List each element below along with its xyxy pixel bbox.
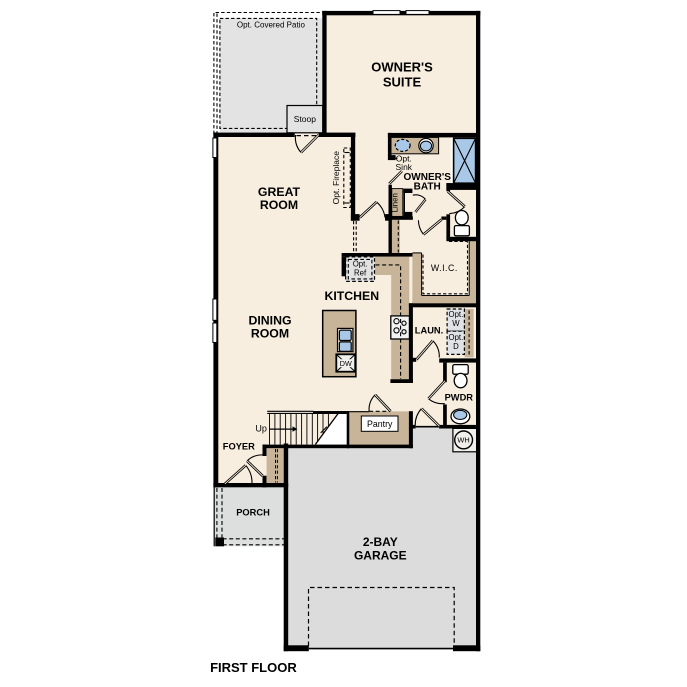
svg-text:Opt.: Opt. — [449, 333, 464, 342]
svg-text:FIRST FLOOR: FIRST FLOOR — [210, 660, 297, 675]
svg-text:GREAT: GREAT — [258, 185, 301, 199]
svg-text:FOYER: FOYER — [223, 442, 255, 452]
svg-text:D: D — [453, 342, 459, 351]
svg-text:Opt.: Opt. — [353, 260, 368, 269]
svg-text:Up: Up — [255, 423, 267, 433]
svg-text:PORCH: PORCH — [236, 508, 270, 518]
svg-text:Opt. Covered Patio: Opt. Covered Patio — [237, 20, 306, 29]
svg-text:OWNER'S: OWNER'S — [371, 60, 433, 75]
svg-text:2-BAY: 2-BAY — [363, 535, 398, 549]
svg-text:BATH: BATH — [414, 181, 441, 192]
svg-text:W: W — [452, 319, 460, 328]
svg-text:SUITE: SUITE — [383, 75, 422, 90]
svg-text:DW: DW — [340, 359, 352, 368]
svg-text:Ref: Ref — [354, 269, 367, 278]
svg-text:PWDR: PWDR — [445, 392, 474, 402]
svg-text:Opt. Fireplace: Opt. Fireplace — [331, 151, 341, 205]
svg-text:WH: WH — [457, 436, 469, 445]
svg-text:Linen: Linen — [391, 193, 400, 212]
svg-text:Pantry: Pantry — [367, 419, 393, 429]
svg-text:LAUN.: LAUN. — [415, 326, 443, 336]
svg-text:DINING: DINING — [248, 314, 291, 328]
svg-text:KITCHEN: KITCHEN — [324, 289, 379, 303]
svg-text:Stoop: Stoop — [294, 114, 316, 124]
svg-text:ROOM: ROOM — [251, 327, 289, 341]
svg-text:W.I.C.: W.I.C. — [431, 263, 458, 273]
svg-text:Sink: Sink — [396, 162, 413, 172]
svg-text:GARAGE: GARAGE — [354, 548, 407, 562]
svg-text:Opt.: Opt. — [449, 310, 464, 319]
svg-text:ROOM: ROOM — [260, 198, 298, 212]
